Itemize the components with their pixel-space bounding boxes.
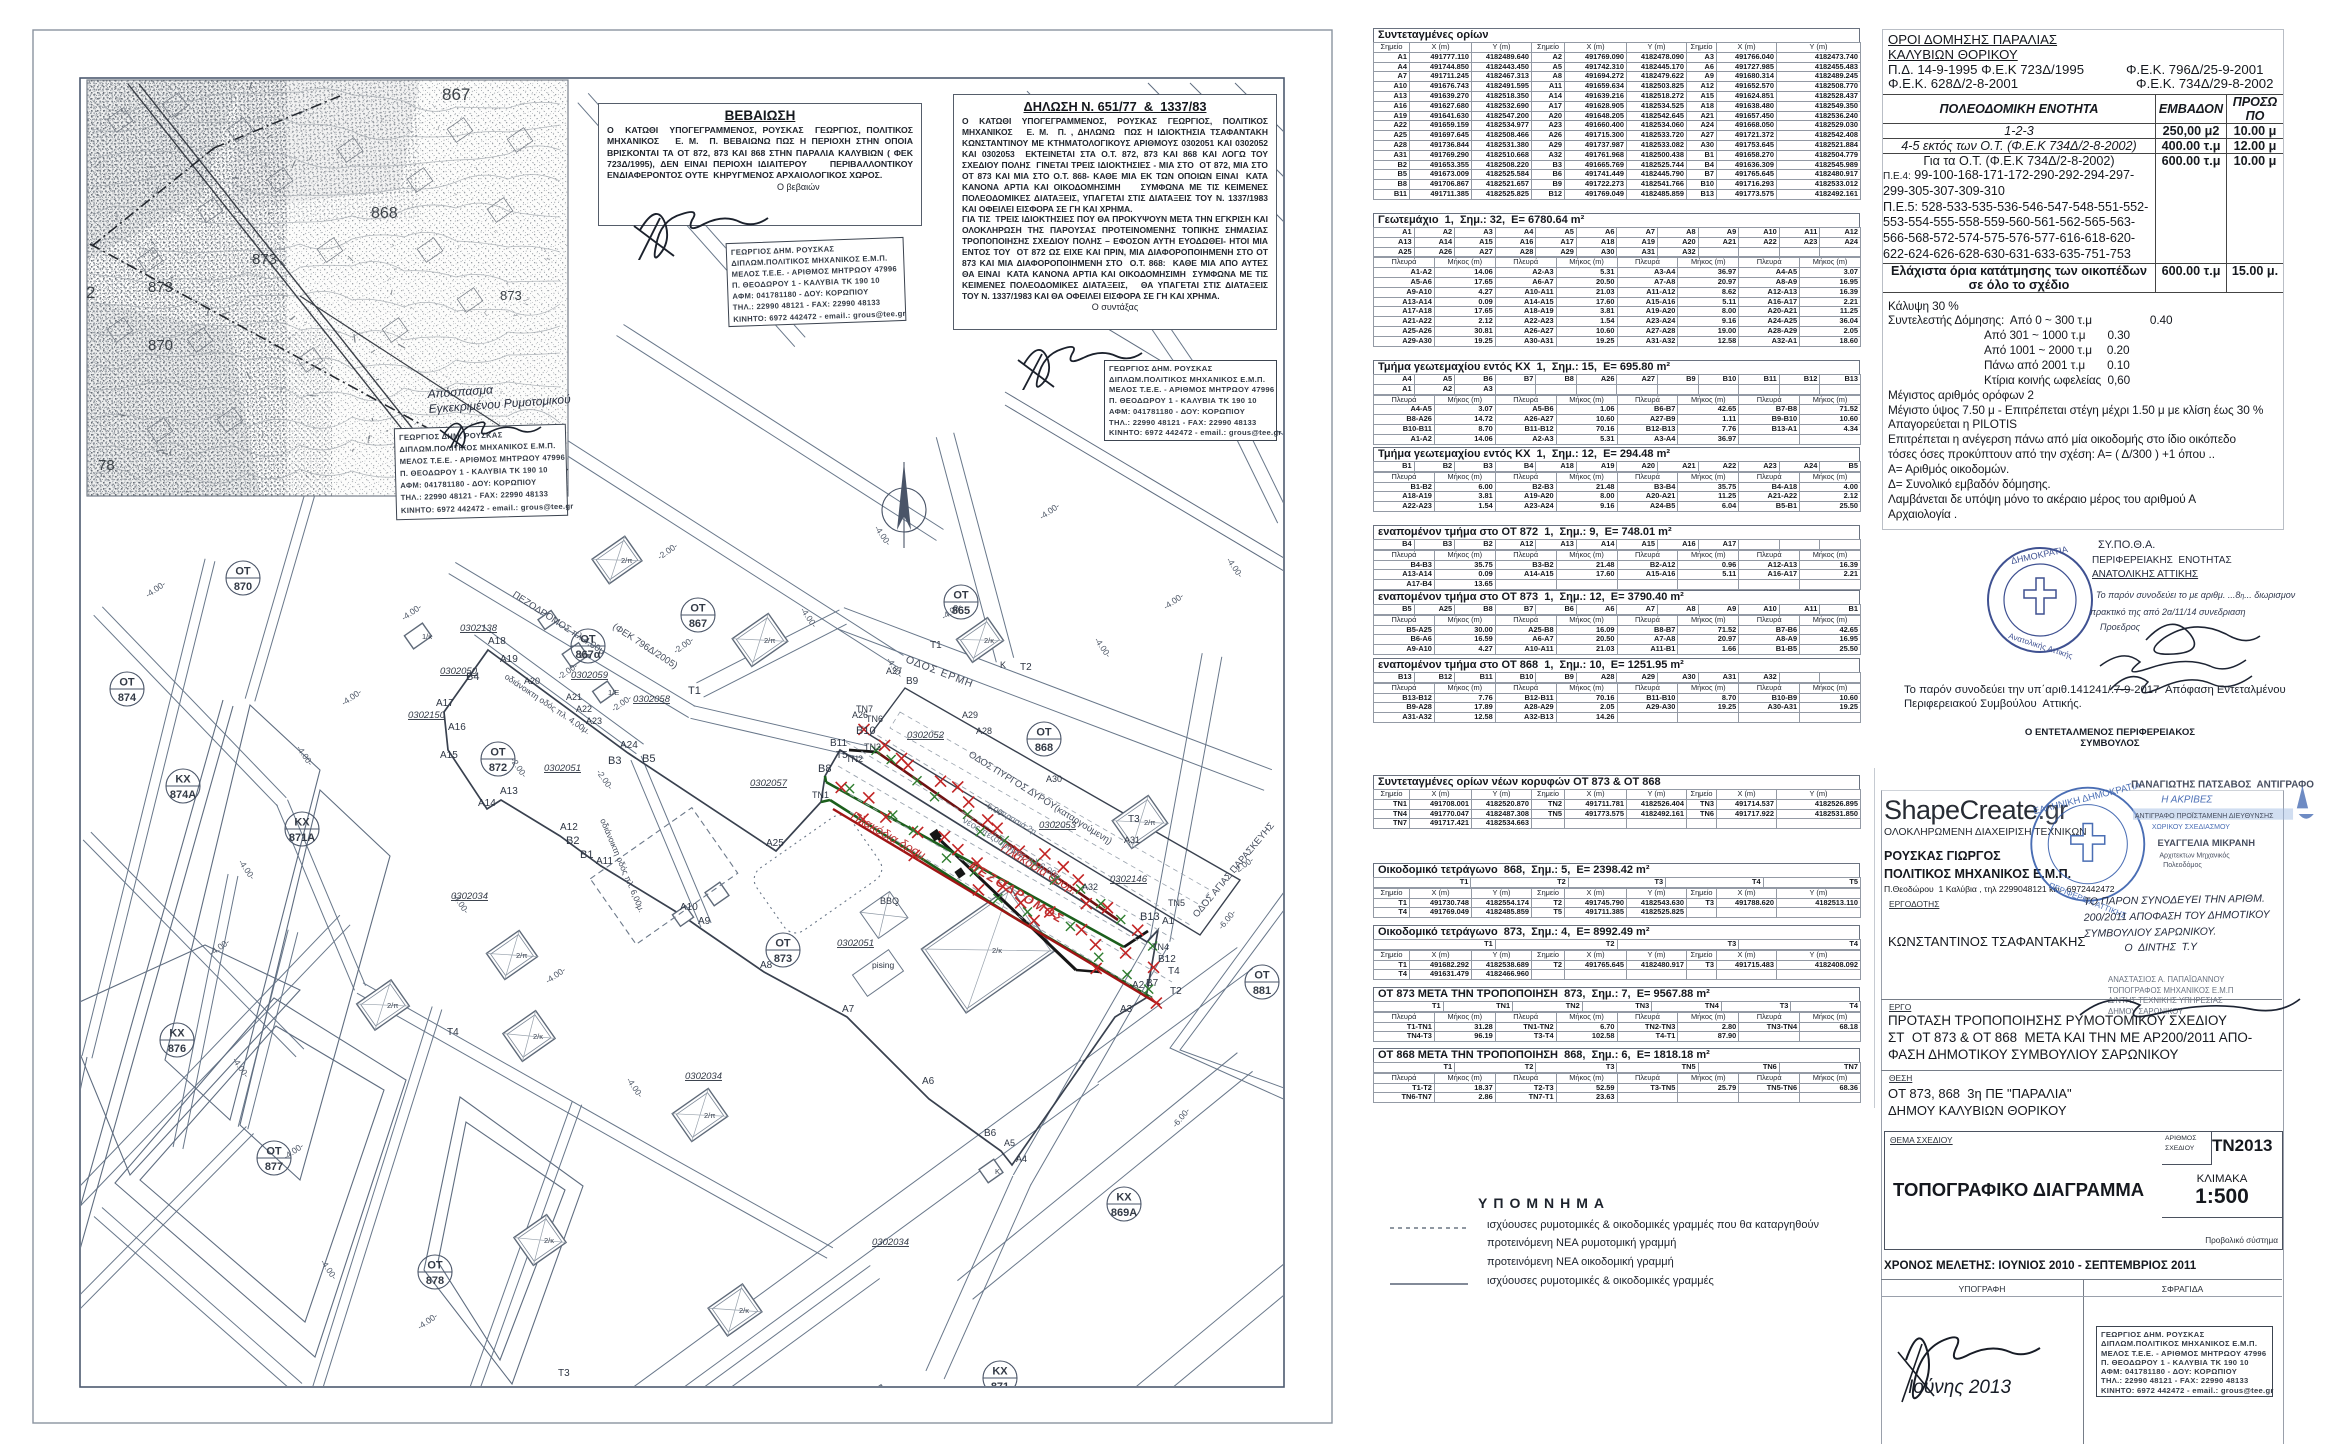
svg-text:ΟΤ: ΟΤ xyxy=(1036,727,1052,739)
svg-text:ΕΛΛΗΝΙΚΗ ΔΗΜΟΚΡΑΤΙΑ: ΕΛΛΗΝΙΚΗ ΔΗΜΟΚΡΑΤΙΑ xyxy=(2032,779,2143,817)
svg-text:2: 2 xyxy=(86,283,95,302)
svg-text:A5: A5 xyxy=(1004,1138,1015,1148)
svg-text:TN6: TN6 xyxy=(866,714,883,724)
svg-text:A22: A22 xyxy=(576,704,592,714)
svg-text:T4: T4 xyxy=(1168,966,1180,977)
svg-text:A28: A28 xyxy=(976,726,992,736)
svg-text:878: 878 xyxy=(426,1275,444,1287)
svg-text:1/Ε: 1/Ε xyxy=(608,688,619,697)
svg-text:ΟΤ: ΟΤ xyxy=(1254,970,1270,982)
svg-text:-4.00-: -4.00- xyxy=(624,1075,645,1099)
svg-text:873: 873 xyxy=(252,251,277,268)
svg-text:2/π: 2/π xyxy=(621,556,632,565)
svg-text:T3: T3 xyxy=(558,1368,570,1379)
svg-text:873: 873 xyxy=(148,279,173,296)
svg-text:-4.00-: -4.00- xyxy=(543,965,567,986)
svg-text:2/κ: 2/κ xyxy=(877,1406,887,1415)
svg-text:(ΦΕΚ 796Δ/2005): (ΦΕΚ 796Δ/2005) xyxy=(610,621,679,671)
svg-text:ΧΩΡΙΚΟΥ ΣΧΕΔΙΑΣΜΟΥ: ΧΩΡΙΚΟΥ ΣΧΕΔΙΑΣΜΟΥ xyxy=(2152,824,2230,831)
svg-text:TN5: TN5 xyxy=(1168,898,1185,908)
svg-text:0302057: 0302057 xyxy=(750,778,788,789)
svg-text:B9: B9 xyxy=(906,676,919,687)
svg-text:A29: A29 xyxy=(962,710,978,720)
svg-text:1/κ: 1/κ xyxy=(422,632,432,641)
svg-text:πρακτικό της από 2α/11/14 συνε: πρακτικό της από 2α/11/14 συνεδριαση xyxy=(2090,607,2246,617)
svg-text:A13: A13 xyxy=(500,786,518,797)
svg-text:B5: B5 xyxy=(642,753,655,765)
svg-text:2/κ: 2/κ xyxy=(984,636,994,645)
svg-text:Η ΑΚΡΙΒΕΣ: Η ΑΚΡΙΒΕΣ xyxy=(2161,795,2213,806)
svg-text:TN1: TN1 xyxy=(812,790,829,800)
svg-text:A2: A2 xyxy=(1132,980,1145,991)
svg-text:0302051: 0302051 xyxy=(837,938,874,949)
svg-text:-4.00-: -4.00- xyxy=(143,579,167,600)
svg-text:867: 867 xyxy=(442,85,470,104)
svg-text:873: 873 xyxy=(500,288,522,303)
svg-text:T2: T2 xyxy=(1020,662,1032,673)
svg-text:869Α: 869Α xyxy=(1111,1207,1137,1219)
svg-text:A14: A14 xyxy=(478,798,496,809)
svg-text:2/κ: 2/κ xyxy=(739,1306,749,1315)
svg-text:868: 868 xyxy=(371,205,398,222)
svg-text:Ιούνης 2013: Ιούνης 2013 xyxy=(1908,1377,2012,1398)
svg-text:K: K xyxy=(995,1167,1000,1176)
svg-text:ΚΧ: ΚΧ xyxy=(175,774,191,786)
svg-text:A3: A3 xyxy=(1120,1004,1133,1015)
svg-text:T1: T1 xyxy=(930,640,942,651)
svg-text:2/κ: 2/κ xyxy=(533,1032,543,1041)
svg-text:B13: B13 xyxy=(1140,911,1160,923)
svg-text:0302138: 0302138 xyxy=(460,623,498,634)
svg-text:ΟΤ: ΟΤ xyxy=(775,938,791,950)
svg-text:A32: A32 xyxy=(1082,882,1098,892)
svg-text:ΚΧ: ΚΧ xyxy=(169,1028,185,1040)
svg-text:0302034: 0302034 xyxy=(872,1237,909,1248)
svg-text:2/π: 2/π xyxy=(704,1111,715,1120)
svg-text:TN4: TN4 xyxy=(1152,942,1169,952)
svg-text:-4.00-: -4.00- xyxy=(1224,555,1245,579)
svg-text:T2: T2 xyxy=(1170,986,1182,997)
svg-text:A12: A12 xyxy=(560,822,578,833)
svg-text:TN7: TN7 xyxy=(856,704,873,714)
svg-text:78: 78 xyxy=(98,457,115,474)
svg-text:A23: A23 xyxy=(586,716,602,726)
svg-text:2/π: 2/π xyxy=(516,951,527,960)
svg-text:867α: 867α xyxy=(575,649,600,661)
svg-text:TN2: TN2 xyxy=(846,754,863,764)
svg-text:A1: A1 xyxy=(1162,916,1175,927)
svg-text:B10: B10 xyxy=(856,725,876,737)
svg-text:-4.00-: -4.00- xyxy=(1161,591,1185,612)
svg-text:877: 877 xyxy=(265,1161,283,1173)
svg-text:ΚΧ: ΚΧ xyxy=(1116,1192,1132,1204)
svg-text:ΠΑΝΑΓΙΩΤΗΣ ΠΑΤΣΑΒΟΣ ΑΝΤΙΓΡΑΦΟ: ΠΑΝΑΓΙΩΤΗΣ ΠΑΤΣΑΒΟΣ ΑΝΤΙΓΡΑΦΟ xyxy=(2131,780,2314,791)
svg-text:0302150: 0302150 xyxy=(408,710,446,721)
svg-text:A25: A25 xyxy=(766,838,784,849)
svg-text:A16: A16 xyxy=(448,722,466,733)
svg-text:A10: A10 xyxy=(680,902,698,913)
svg-text:ΕΥΑΓΓΕΛΙΑ ΜΙΚΡΑΝΗ: ΕΥΑΓΓΕΛΙΑ ΜΙΚΡΑΝΗ xyxy=(2157,837,2255,848)
svg-text:A6: A6 xyxy=(922,1076,935,1087)
svg-text:B8: B8 xyxy=(818,763,831,775)
svg-text:868: 868 xyxy=(1035,742,1053,754)
svg-text:ΟΤ: ΟΤ xyxy=(953,590,969,602)
svg-text:A15: A15 xyxy=(440,750,458,761)
svg-text:-6.00-: -6.00- xyxy=(1170,1106,1192,1130)
svg-text:872: 872 xyxy=(489,762,507,774)
svg-text:2/π: 2/π xyxy=(764,636,775,645)
svg-text:0302052: 0302052 xyxy=(907,730,945,741)
svg-text:ΟΤ: ΟΤ xyxy=(580,634,596,646)
svg-text:867: 867 xyxy=(689,618,707,630)
svg-text:-4.00-: -4.00- xyxy=(230,1055,251,1079)
svg-text:ΟΤ: ΟΤ xyxy=(490,747,506,759)
svg-text:2/κ: 2/κ xyxy=(544,1236,554,1245)
svg-text:ΚΧ: ΚΧ xyxy=(992,1366,1008,1378)
svg-text:TN3: TN3 xyxy=(864,742,881,752)
svg-text:-4.00-: -4.00- xyxy=(207,937,231,958)
svg-text:Προεδρος: Προεδρος xyxy=(2100,622,2141,632)
svg-text:A31: A31 xyxy=(1124,835,1140,845)
svg-text:Αρχιτεκτων Μηχανικός: Αρχιτεκτων Μηχανικός xyxy=(2159,851,2230,859)
svg-text:870: 870 xyxy=(234,581,252,593)
svg-text:ΠΕΡΙΦΕΡΕΙΑΚΗΣ ΕΝΟΤΗΤΑΣ: ΠΕΡΙΦΕΡΕΙΑΚΗΣ ΕΝΟΤΗΤΑΣ xyxy=(2092,555,2232,566)
svg-text:-4.00-: -4.00- xyxy=(339,687,363,708)
svg-text:ΟΤ: ΟΤ xyxy=(266,1146,282,1158)
svg-text:ΟΤ: ΟΤ xyxy=(235,566,251,578)
svg-text:B1: B1 xyxy=(580,849,593,861)
svg-text:B12: B12 xyxy=(1158,954,1176,965)
svg-text:BBQ: BBQ xyxy=(880,896,899,906)
svg-text:-4.00-: -4.00- xyxy=(294,743,315,767)
svg-text:-6.00-: -6.00- xyxy=(1216,908,1238,932)
svg-text:870: 870 xyxy=(148,337,173,354)
svg-text:A21: A21 xyxy=(566,692,582,702)
svg-text:2/π: 2/π xyxy=(1144,818,1155,827)
svg-text:A20: A20 xyxy=(524,676,540,686)
svg-text:A19: A19 xyxy=(500,654,518,665)
svg-text:874Α: 874Α xyxy=(170,789,196,801)
svg-text:K: K xyxy=(1000,660,1006,670)
svg-text:A17: A17 xyxy=(436,698,454,709)
svg-text:874: 874 xyxy=(118,692,137,704)
svg-text:A30: A30 xyxy=(1046,774,1062,784)
svg-text:Πολεοδόμος: Πολεοδόμος xyxy=(2163,861,2202,869)
svg-text:2/κ: 2/κ xyxy=(992,946,1002,955)
svg-text:-4.00-: -4.00- xyxy=(518,1399,539,1423)
svg-text:A4: A4 xyxy=(1016,1154,1027,1164)
svg-text:-4.00-: -4.00- xyxy=(798,605,819,629)
svg-text:A9: A9 xyxy=(698,916,711,927)
svg-text:T1: T1 xyxy=(688,685,701,697)
svg-text:ΚΧ: ΚΧ xyxy=(294,817,310,829)
svg-text:881: 881 xyxy=(1253,985,1271,997)
svg-text:0302058: 0302058 xyxy=(633,694,671,705)
svg-text:B6: B6 xyxy=(984,1128,997,1139)
svg-text:A7: A7 xyxy=(842,1004,855,1015)
svg-text:B3: B3 xyxy=(608,755,621,767)
svg-text:2/π: 2/π xyxy=(387,1001,398,1010)
svg-text:-4.00-: -4.00- xyxy=(415,1311,439,1332)
svg-text:-4.00-: -4.00- xyxy=(399,602,423,623)
svg-text:ΟΤ: ΟΤ xyxy=(427,1260,443,1272)
svg-text:B4: B4 xyxy=(466,671,479,683)
svg-text:A11: A11 xyxy=(596,856,613,867)
svg-text:pising: pising xyxy=(872,960,894,970)
svg-text:-4.00-: -4.00- xyxy=(1037,501,1061,522)
svg-text:-6.00-: -6.00- xyxy=(983,799,1007,819)
svg-text:-4.00-: -4.00- xyxy=(318,1257,339,1281)
svg-text:0302034: 0302034 xyxy=(685,1071,722,1082)
svg-text:865: 865 xyxy=(952,605,970,617)
svg-text:-2.00-: -2.00- xyxy=(671,635,695,656)
svg-text:0302053: 0302053 xyxy=(1039,820,1077,831)
svg-text:873: 873 xyxy=(774,953,792,965)
svg-text:A27: A27 xyxy=(886,666,902,676)
svg-text:0302146: 0302146 xyxy=(1110,874,1148,885)
svg-text:T3: T3 xyxy=(1128,814,1140,825)
svg-text:ΟΤ: ΟΤ xyxy=(690,603,706,615)
svg-text:-4.00-: -4.00- xyxy=(236,857,257,881)
svg-text:876: 876 xyxy=(168,1043,186,1055)
svg-text:-4.00-: -4.00- xyxy=(1092,635,1113,659)
svg-text:871Α: 871Α xyxy=(289,832,315,844)
svg-text:-2.00-: -2.00- xyxy=(655,541,679,562)
svg-text:ΠΕΖΟΔΡΟΜΟΣ πλ.4,00μ: ΠΕΖΟΔΡΟΜΟΣ πλ.4,00μ xyxy=(510,589,607,657)
svg-text:0302034: 0302034 xyxy=(451,891,488,902)
svg-text:ΟΤ: ΟΤ xyxy=(119,677,135,689)
svg-text:A24: A24 xyxy=(620,740,638,751)
svg-text:A18: A18 xyxy=(488,636,506,647)
svg-text:0302051: 0302051 xyxy=(544,763,581,774)
svg-text:T4: T4 xyxy=(447,1027,459,1038)
svg-text:-2.00-: -2.00- xyxy=(594,767,615,791)
svg-text:B2: B2 xyxy=(566,835,579,847)
svg-text:B7: B7 xyxy=(1146,978,1159,989)
svg-text:Το παρόν συνοδεύει το με αριθμ: Το παρόν συνοδεύει το με αριθμ. ...8η...… xyxy=(2096,590,2296,600)
svg-text:ΑΝΑΤΟΛΙΚΗΣ ΑΤΤΙΚΗΣ: ΑΝΑΤΟΛΙΚΗΣ ΑΤΤΙΚΗΣ xyxy=(2092,569,2198,580)
svg-text:B11: B11 xyxy=(830,738,847,749)
svg-text:ΑΝΤΙΓΡΑΦΟ ΠΡΟΪΣΤΑΜΕΝΗ ΔΙΕΥΘΥΝΣ: ΑΝΤΙΓΡΑΦΟ ΠΡΟΪΣΤΑΜΕΝΗ ΔΙΕΥΘΥΝΣΗΣ xyxy=(2135,812,2274,820)
svg-text:ΣΥ.ΠΟ.Θ.Α.: ΣΥ.ΠΟ.Θ.Α. xyxy=(2098,539,2155,551)
svg-text:0302059: 0302059 xyxy=(571,670,609,681)
